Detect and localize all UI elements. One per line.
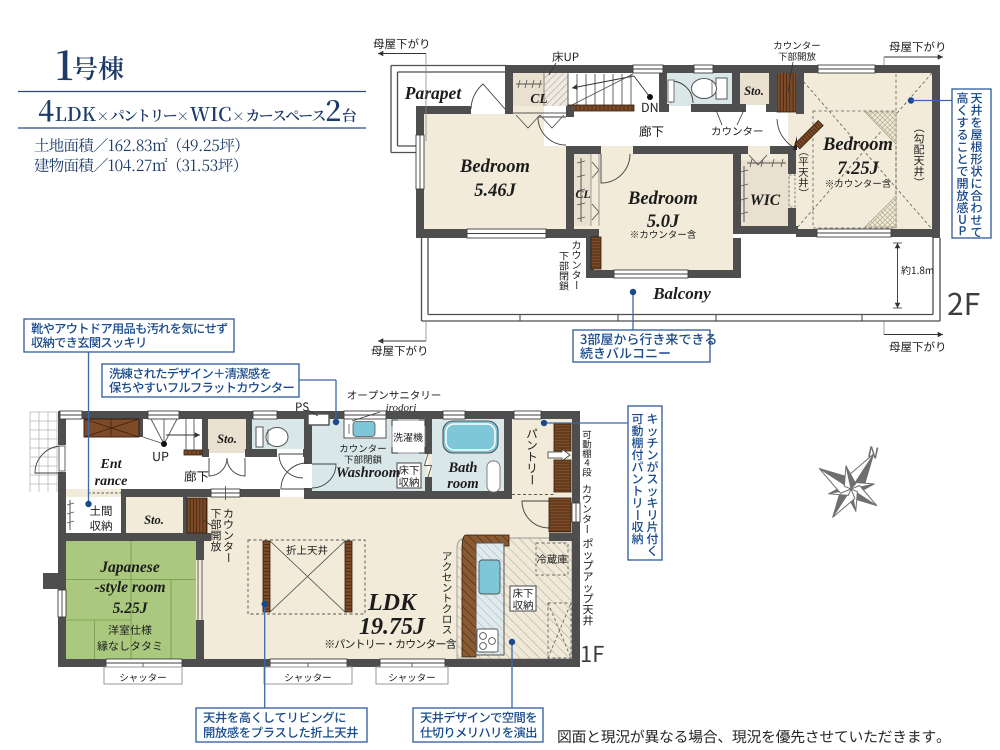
svg-text:7.25J: 7.25J xyxy=(837,159,879,179)
svg-text:CL: CL xyxy=(575,187,590,201)
svg-text:Balcony: Balcony xyxy=(652,284,711,303)
svg-text:Japanese: Japanese xyxy=(99,559,160,576)
svg-text:Bedroom: Bedroom xyxy=(459,157,530,177)
svg-text:rance: rance xyxy=(95,474,128,489)
svg-text:LDK: LDK xyxy=(367,590,418,616)
svg-text:5.25J: 5.25J xyxy=(113,600,149,617)
svg-text:Washroom: Washroom xyxy=(336,465,400,481)
svg-text:5.0J: 5.0J xyxy=(647,212,680,232)
svg-text:Bedroom: Bedroom xyxy=(627,189,698,209)
svg-text:Sto.: Sto. xyxy=(744,84,764,98)
svg-text:Bath: Bath xyxy=(447,460,477,476)
svg-text:-style room: -style room xyxy=(94,579,165,596)
svg-text:irodori: irodori xyxy=(386,402,417,414)
svg-text:Parapet: Parapet xyxy=(404,83,463,103)
svg-text:room: room xyxy=(447,476,478,492)
svg-text:WIC: WIC xyxy=(750,192,781,209)
svg-text:Bedroom: Bedroom xyxy=(822,135,893,155)
svg-text:Sto.: Sto. xyxy=(217,432,237,446)
svg-text:Sto.: Sto. xyxy=(144,513,164,527)
svg-text:Ent: Ent xyxy=(99,457,122,472)
svg-text:CL: CL xyxy=(530,91,547,106)
svg-text:19.75J: 19.75J xyxy=(359,614,426,640)
svg-text:5.46J: 5.46J xyxy=(474,181,516,201)
